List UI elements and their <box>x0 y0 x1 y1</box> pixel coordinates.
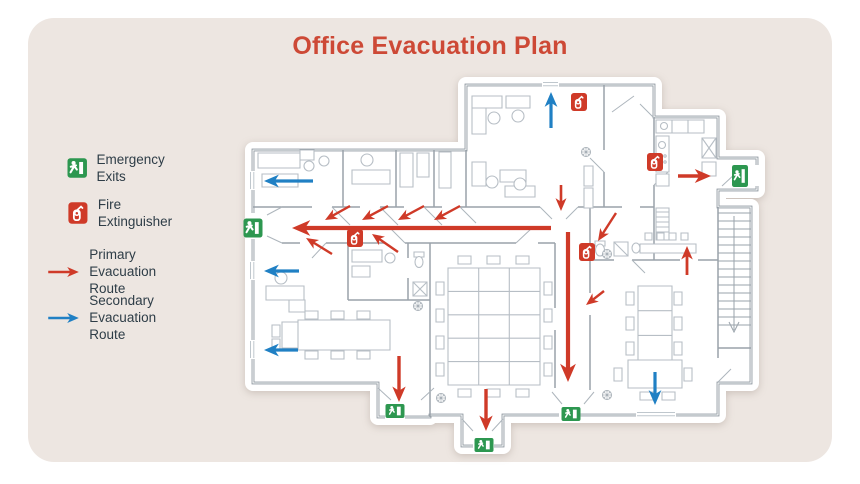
emergency-exit-icon <box>244 219 263 238</box>
secondary-route-arrow <box>48 313 79 323</box>
plant-icon <box>414 302 423 311</box>
fire-extinguisher-icon <box>68 202 87 223</box>
evacuation-plan-canvas: Office Evacuation Plan <box>0 0 860 484</box>
legend-item-emergency-exits: Emergency Exits <box>66 151 172 185</box>
legend-label: Fire Extinguisher <box>98 196 178 230</box>
fire-extinguisher-icon <box>347 229 363 247</box>
floor-plan <box>0 0 860 484</box>
legend-label: Primary Evacuation Route <box>89 246 169 297</box>
fire-extinguisher-icon <box>579 243 595 261</box>
plant-icon <box>582 148 591 157</box>
legend-label: Secondary Evacuation Route <box>89 292 169 343</box>
fire-extinguisher-icon <box>647 153 663 171</box>
emergency-exit-icon <box>386 404 405 418</box>
plant-icon <box>437 394 446 403</box>
emergency-exit-icon <box>66 153 88 183</box>
emergency-exit-icon <box>475 438 494 452</box>
legend-item-fire-extinguisher: Fire Extinguisher <box>66 196 178 230</box>
fire-extinguisher-icon <box>66 198 90 228</box>
emergency-exit-icon <box>67 158 86 177</box>
legend-item-secondary-route: Secondary Evacuation Route <box>46 292 169 343</box>
secondary-route-arrow <box>46 308 83 328</box>
primary-route-arrow <box>46 262 83 282</box>
emergency-exit-icon <box>732 165 748 187</box>
primary-route-arrow <box>48 267 79 277</box>
legend-label: Emergency Exits <box>96 151 172 185</box>
building-backdrop <box>253 85 757 446</box>
plant-icon <box>603 391 612 400</box>
legend-item-primary-route: Primary Evacuation Route <box>46 246 169 297</box>
fire-extinguisher-icon <box>571 93 587 111</box>
plant-icon <box>603 250 612 259</box>
emergency-exit-icon <box>562 407 581 421</box>
